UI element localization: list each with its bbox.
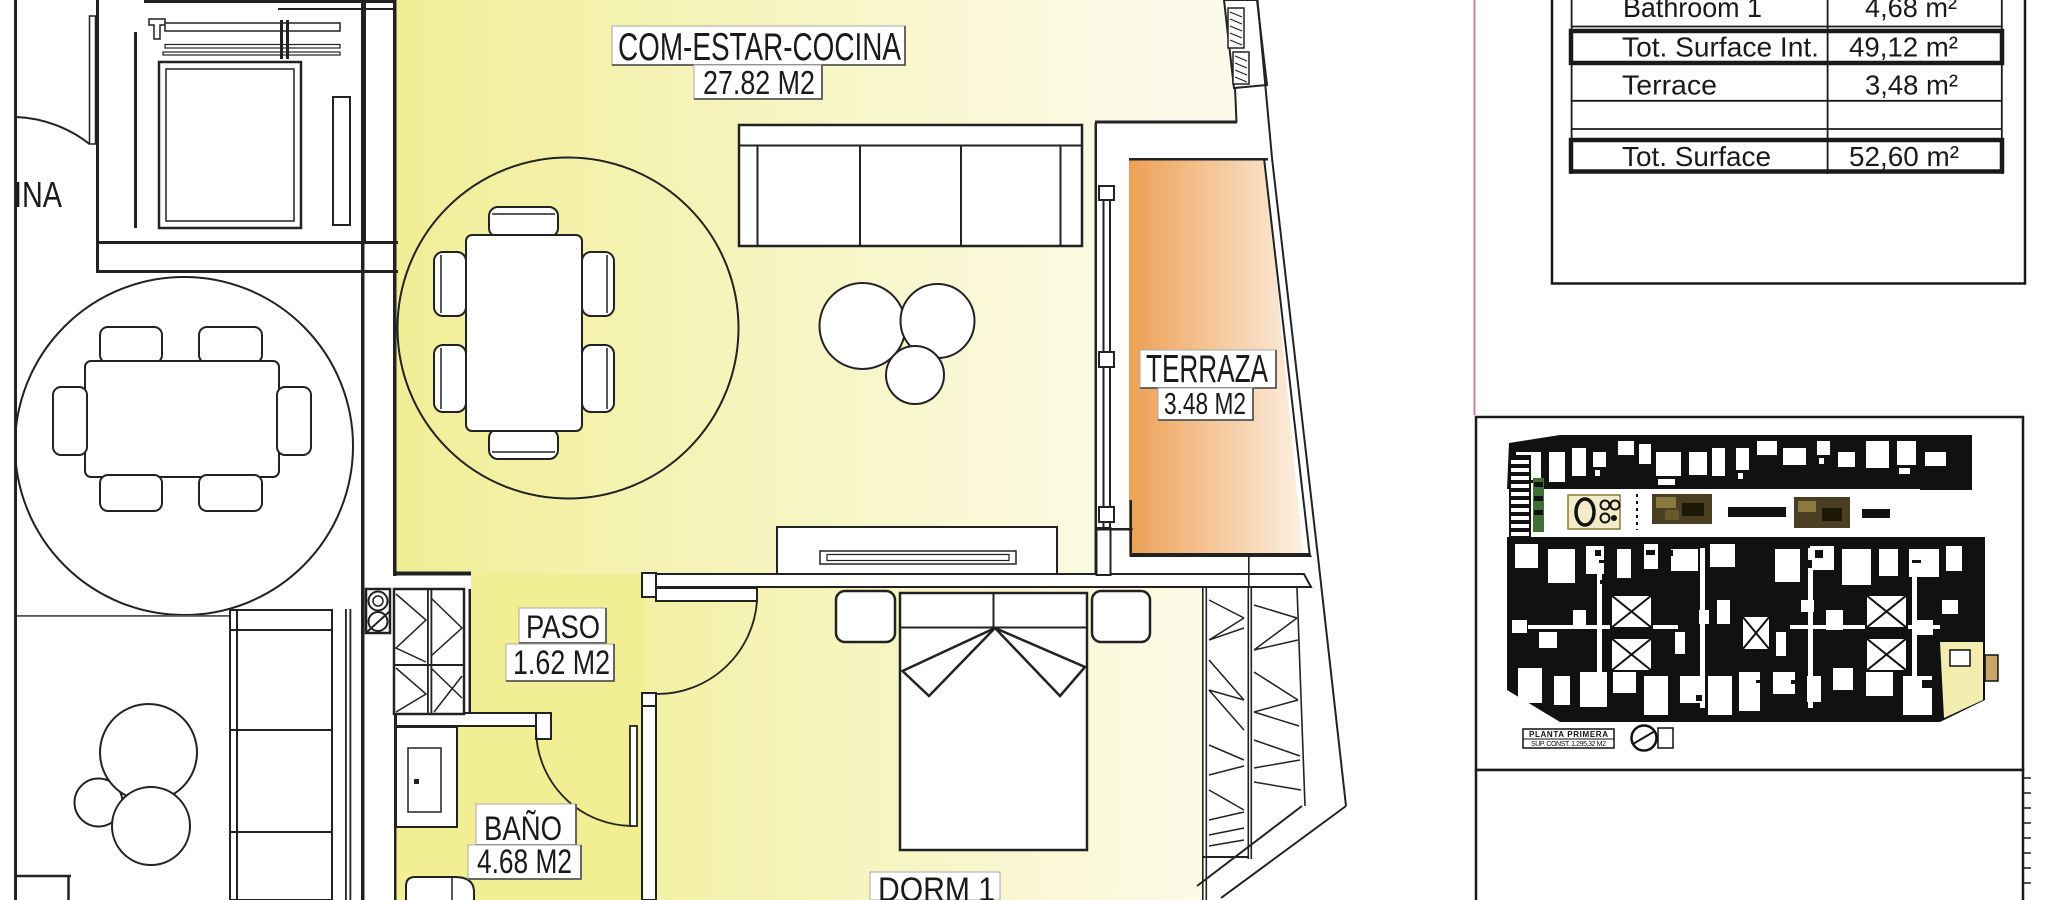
svg-text:DORM 1: DORM 1 <box>878 871 995 900</box>
svg-text:SUP. CONST. 1.295,32 M2: SUP. CONST. 1.295,32 M2 <box>1531 741 1606 748</box>
svg-text:Bathroom 1: Bathroom 1 <box>1623 0 1762 23</box>
svg-text:Tot. Surface: Tot. Surface <box>1622 141 1771 172</box>
svg-text:4,68 m²: 4,68 m² <box>1865 0 1957 23</box>
svg-text:1.62 M2: 1.62 M2 <box>513 644 610 682</box>
svg-text:INA: INA <box>14 174 62 215</box>
svg-text:Terrace: Terrace <box>1622 70 1717 101</box>
svg-text:49,12 m²: 49,12 m² <box>1849 32 1958 63</box>
svg-text:27.82 M2: 27.82 M2 <box>703 64 815 101</box>
svg-text:TERRAZA: TERRAZA <box>1146 348 1268 391</box>
svg-text:3,48 m²: 3,48 m² <box>1865 70 1958 101</box>
svg-text:PLANTA PRIMERA: PLANTA PRIMERA <box>1529 730 1608 739</box>
svg-text:Tot. Surface Int.: Tot. Surface Int. <box>1622 32 1819 63</box>
svg-text:52,60 m²: 52,60 m² <box>1849 141 1959 172</box>
svg-text:COM-ESTAR-COCINA: COM-ESTAR-COCINA <box>618 26 901 69</box>
svg-text:4.68 M2: 4.68 M2 <box>477 843 572 881</box>
svg-text:3.48 M2: 3.48 M2 <box>1164 386 1246 421</box>
svg-text:PASO: PASO <box>526 609 600 645</box>
